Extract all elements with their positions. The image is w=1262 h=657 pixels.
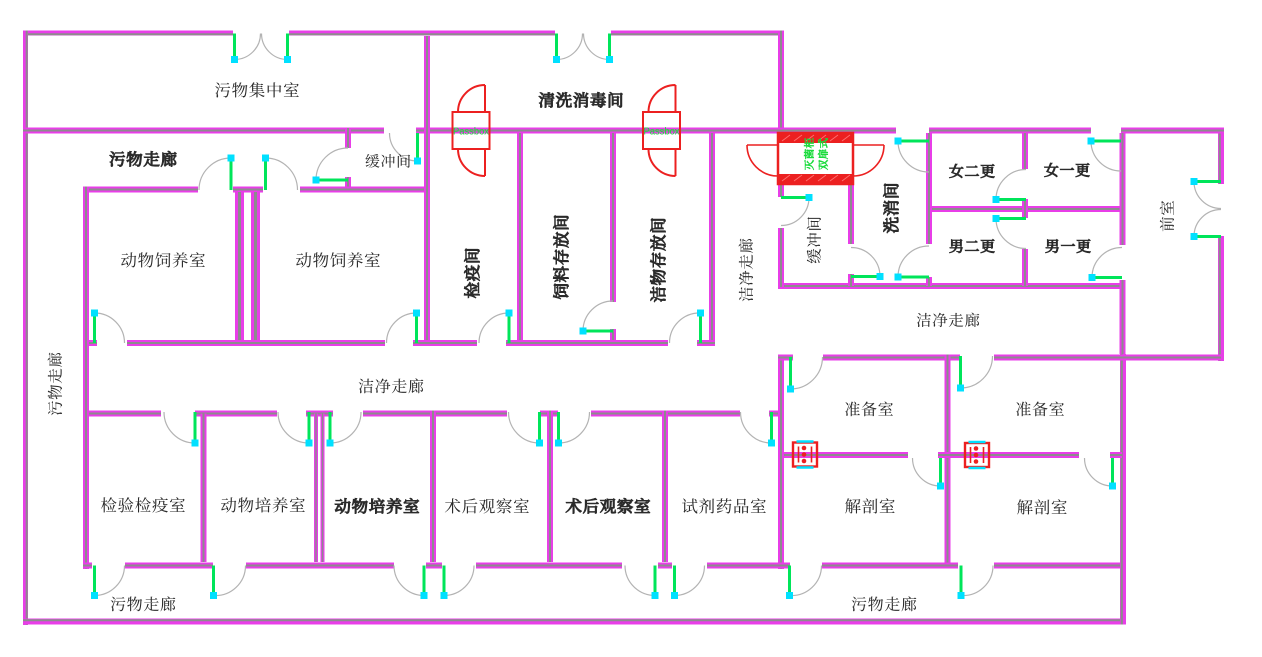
svg-text:Passbox: Passbox: [644, 127, 680, 138]
svg-text:Passbox: Passbox: [453, 127, 489, 138]
